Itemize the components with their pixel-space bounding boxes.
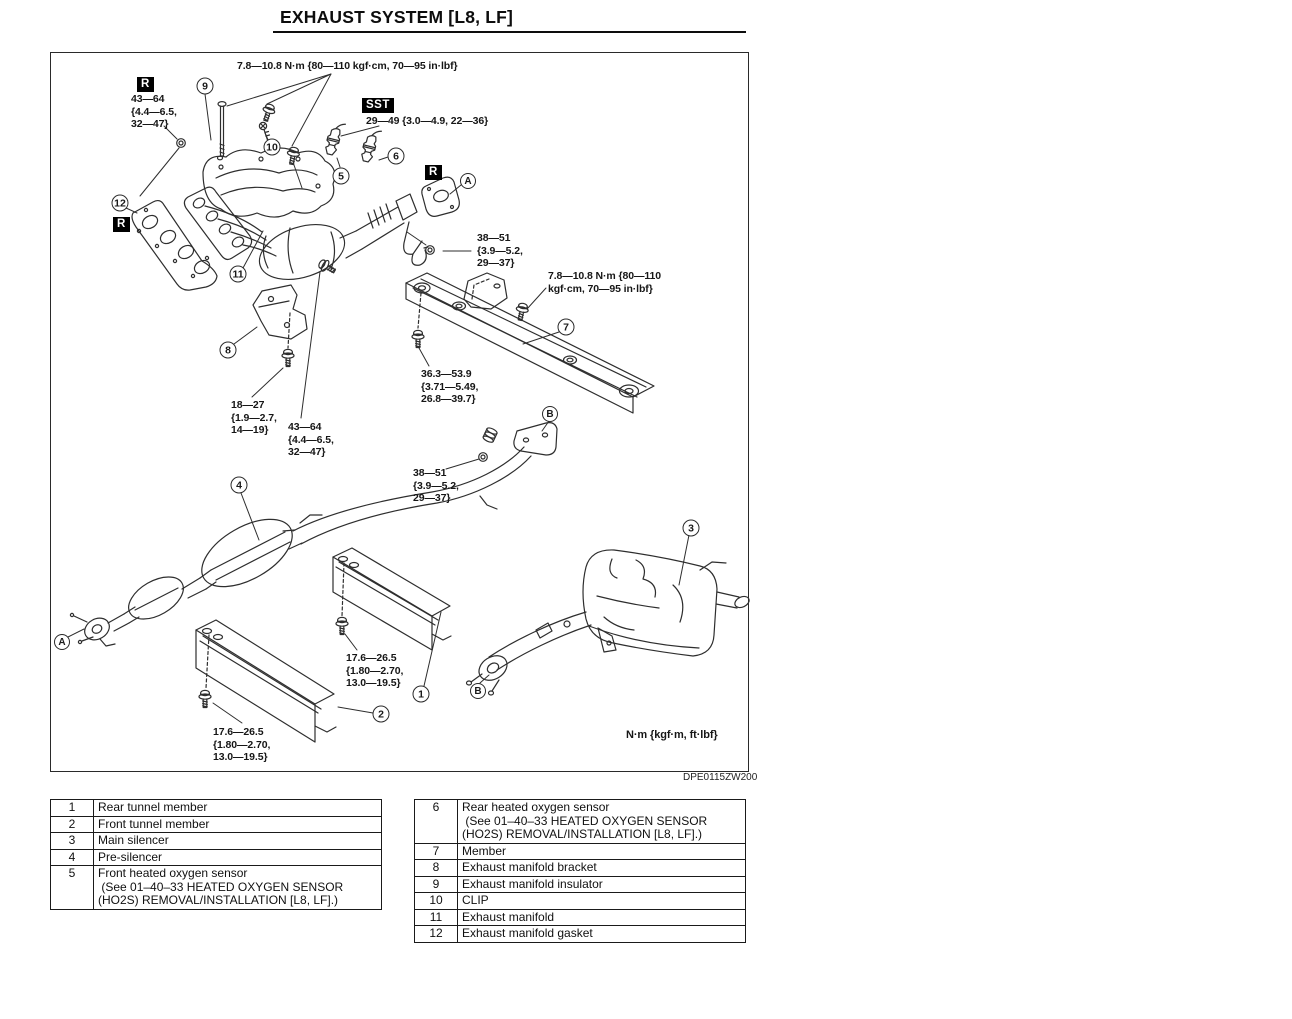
callout-6-3: 6 bbox=[388, 148, 405, 165]
callout-b-15: B bbox=[470, 683, 486, 699]
part-description: Exhaust manifold gasket bbox=[458, 926, 746, 943]
replace-flag-0: R bbox=[137, 77, 154, 92]
part-description: Rear heated oxygen sensor (See 01–40–33 … bbox=[458, 800, 746, 844]
part-number: 9 bbox=[415, 876, 458, 893]
parts-table-row: 10CLIP bbox=[415, 893, 746, 910]
callout-9-0: 9 bbox=[197, 78, 214, 95]
parts-table-row: 4Pre-silencer bbox=[51, 849, 382, 866]
replace-flag-3: R bbox=[113, 217, 130, 232]
parts-table-row: 3Main silencer bbox=[51, 833, 382, 850]
part-description: Exhaust manifold bbox=[458, 909, 746, 926]
member-bolt-torque: 7.8—10.8 N·m {80—110kgf·cm, 70—95 in·lbf… bbox=[548, 270, 661, 295]
parts-table-row: 12Exhaust manifold gasket bbox=[415, 926, 746, 943]
parts-table-row: 9Exhaust manifold insulator bbox=[415, 876, 746, 893]
callout-b-9: B bbox=[542, 406, 558, 422]
figure-code: DPE0115ZW200 bbox=[683, 772, 757, 783]
callout-7-8: 7 bbox=[558, 319, 575, 336]
flange-b-torque: 38—51{3.9—5.2,29—37} bbox=[413, 467, 459, 505]
part-number: 10 bbox=[415, 893, 458, 910]
rear-tunnel-bolt-torque: 17.6—26.5{1.80—2.70,13.0—19.5} bbox=[346, 652, 403, 690]
parts-table-row: 11Exhaust manifold bbox=[415, 909, 746, 926]
callout-3-14: 3 bbox=[683, 520, 700, 537]
replace-flag-2: R bbox=[425, 165, 442, 180]
manifold-nut-torque: 7.8—10.8 N·m {80—110 kgf·cm, 70—95 in·lb… bbox=[237, 60, 457, 73]
parts-table-row: 2Front tunnel member bbox=[51, 816, 382, 833]
sst-flag-1: SST bbox=[362, 98, 394, 113]
part-description: Main silencer bbox=[94, 833, 382, 850]
part-number: 2 bbox=[51, 816, 94, 833]
part-number: 11 bbox=[415, 909, 458, 926]
callout-a-11: A bbox=[54, 634, 70, 650]
callout-a-4: A bbox=[460, 173, 476, 189]
part-description: Front heated oxygen sensor (See 01–40–33… bbox=[94, 866, 382, 910]
parts-table-row: 5Front heated oxygen sensor (See 01–40–3… bbox=[51, 866, 382, 910]
part-number: 5 bbox=[51, 866, 94, 910]
manual-page: EXHAUST SYSTEM [L8, LF] bbox=[0, 0, 1292, 1019]
callout-11-6: 11 bbox=[230, 266, 247, 283]
callout-5-2: 5 bbox=[333, 168, 350, 185]
part-number: 1 bbox=[51, 800, 94, 817]
flange-a-torque: 38—51{3.9—5.2,29—37} bbox=[477, 232, 523, 270]
parts-table-left: 1Rear tunnel member2Front tunnel member3… bbox=[50, 799, 382, 910]
parts-table-row: 7Member bbox=[415, 843, 746, 860]
units-note: N·m {kgf·m, ft·lbf} bbox=[626, 729, 718, 742]
part-number: 8 bbox=[415, 860, 458, 877]
converter-flange-torque: 43—64{4.4—6.5,32—47} bbox=[288, 421, 334, 459]
parts-table-row: 6Rear heated oxygen sensor (See 01–40–33… bbox=[415, 800, 746, 844]
callout-4-10: 4 bbox=[231, 477, 248, 494]
callout-2-13: 2 bbox=[373, 706, 390, 723]
part-number: 6 bbox=[415, 800, 458, 844]
sensor-sst-torque: 29—49 {3.0—4.9, 22—36} bbox=[366, 115, 488, 128]
bracket-bolt-torque: 18—27{1.9—2.7,14—19} bbox=[231, 399, 277, 437]
parts-table-right: 6Rear heated oxygen sensor (See 01–40–33… bbox=[414, 799, 746, 943]
callout-1-12: 1 bbox=[413, 686, 430, 703]
parts-table-row: 8Exhaust manifold bracket bbox=[415, 860, 746, 877]
flange-r-torque: 43—64{4.4—6.5,32—47} bbox=[131, 93, 177, 131]
parts-table-row: 1Rear tunnel member bbox=[51, 800, 382, 817]
callout-8-7: 8 bbox=[220, 342, 237, 359]
part-description: Rear tunnel member bbox=[94, 800, 382, 817]
front-tunnel-bolt-torque: 17.6—26.5{1.80—2.70,13.0—19.5} bbox=[213, 726, 270, 764]
part-number: 3 bbox=[51, 833, 94, 850]
part-description: Pre-silencer bbox=[94, 849, 382, 866]
part-description: Exhaust manifold bracket bbox=[458, 860, 746, 877]
callout-12-5: 12 bbox=[112, 195, 129, 212]
part-description: Exhaust manifold insulator bbox=[458, 876, 746, 893]
member-mount-torque: 36.3—53.9{3.71—5.49,26.8—39.7} bbox=[421, 368, 478, 406]
callout-10-1: 10 bbox=[264, 139, 281, 156]
part-description: Front tunnel member bbox=[94, 816, 382, 833]
part-number: 12 bbox=[415, 926, 458, 943]
part-description: Member bbox=[458, 843, 746, 860]
part-number: 4 bbox=[51, 849, 94, 866]
part-description: CLIP bbox=[458, 893, 746, 910]
part-number: 7 bbox=[415, 843, 458, 860]
